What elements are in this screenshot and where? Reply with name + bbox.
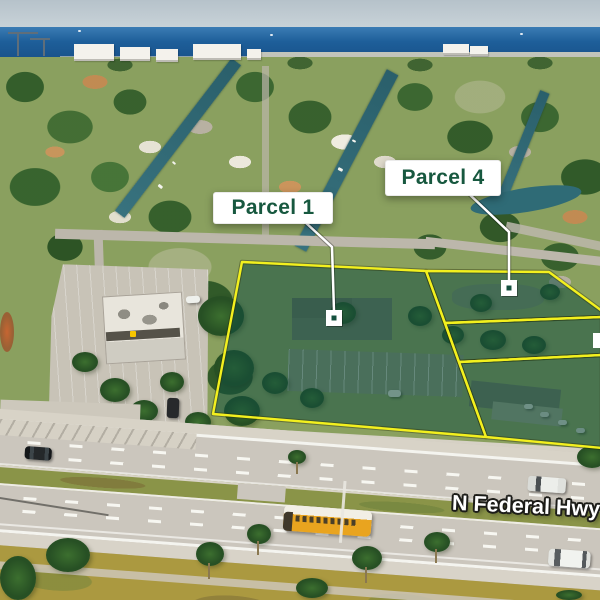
- tree: [198, 296, 244, 336]
- aerial-photo: Parcel 1 Parcel 4 N Federal Hwy: [0, 0, 600, 600]
- parked-car: [388, 390, 401, 397]
- parked-car: [167, 398, 180, 418]
- palm-trunk: [208, 563, 210, 579]
- construction-crane: [43, 38, 45, 56]
- condo-building: [156, 49, 178, 62]
- palm-tree: [300, 388, 324, 408]
- condo-building: [74, 44, 114, 61]
- parked-car: [186, 296, 200, 304]
- clearing: [452, 284, 544, 310]
- boat-speck: [270, 34, 273, 36]
- parcel-1-label-text: Parcel 1: [232, 196, 315, 220]
- palm-trunk: [365, 567, 367, 583]
- condo-building: [470, 46, 488, 56]
- suv-dark: [24, 446, 52, 461]
- parked-car: [540, 412, 549, 417]
- parcel-4-label: Parcel 4: [385, 160, 501, 196]
- condo-building: [247, 49, 261, 60]
- shrub: [556, 590, 582, 600]
- boat-speck: [520, 33, 523, 35]
- tree: [522, 336, 546, 354]
- construction-crane: [30, 38, 50, 40]
- palm-tree: [72, 352, 98, 372]
- condo-building: [193, 44, 241, 60]
- tree: [480, 330, 506, 350]
- construction-crane: [17, 32, 19, 56]
- parcel-1-label: Parcel 1: [213, 192, 333, 224]
- parked-car: [558, 420, 567, 425]
- construction-crane: [8, 32, 38, 34]
- palm-trunk: [435, 549, 437, 563]
- tree: [408, 306, 432, 326]
- parked-car: [576, 428, 585, 433]
- tree: [330, 302, 356, 324]
- palm-trunk: [296, 462, 298, 474]
- condo-building: [120, 47, 150, 61]
- palm-tree: [424, 532, 450, 552]
- parked-car: [524, 404, 533, 409]
- tree: [224, 396, 260, 426]
- palm-trunk: [257, 541, 259, 555]
- palm-tree: [100, 378, 130, 402]
- parcel-4-label-text: Parcel 4: [402, 166, 485, 190]
- tree: [470, 294, 492, 312]
- palm-tree: [247, 524, 271, 544]
- tree: [214, 350, 254, 386]
- shrub: [46, 538, 90, 572]
- palm-tree: [160, 372, 184, 392]
- palm-tree: [352, 546, 382, 570]
- palm-tree: [196, 542, 224, 566]
- flowering-tree: [0, 312, 14, 352]
- tree: [540, 284, 560, 300]
- tree: [577, 446, 600, 468]
- boat-speck: [78, 30, 81, 32]
- condo-building: [443, 44, 469, 55]
- pickup-white: [527, 476, 566, 494]
- tree: [442, 326, 464, 344]
- suv-white: [548, 548, 591, 568]
- shrub: [0, 556, 36, 600]
- shrub: [296, 578, 328, 598]
- palm-tree: [262, 372, 288, 394]
- mcdonalds-logo-icon: [130, 331, 136, 337]
